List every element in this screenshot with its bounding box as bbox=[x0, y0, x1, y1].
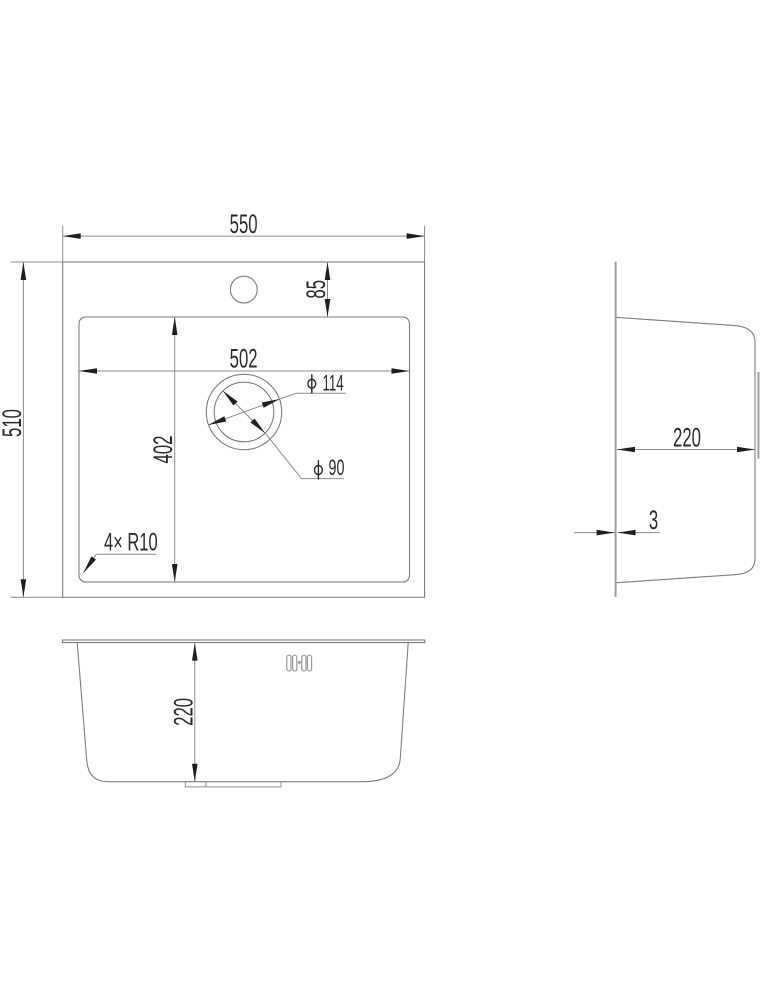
svg-text:3: 3 bbox=[649, 505, 658, 535]
svg-text:402: 402 bbox=[148, 436, 178, 464]
svg-text:4× R10: 4× R10 bbox=[104, 529, 158, 556]
svg-text:510: 510 bbox=[0, 409, 27, 437]
svg-text:220: 220 bbox=[168, 698, 198, 726]
svg-text:502: 502 bbox=[230, 344, 258, 374]
svg-text:220: 220 bbox=[673, 422, 701, 452]
svg-text:85: 85 bbox=[301, 280, 331, 299]
svg-text:550: 550 bbox=[230, 209, 258, 239]
svg-text:90: 90 bbox=[329, 455, 345, 480]
svg-text:114: 114 bbox=[323, 371, 344, 395]
